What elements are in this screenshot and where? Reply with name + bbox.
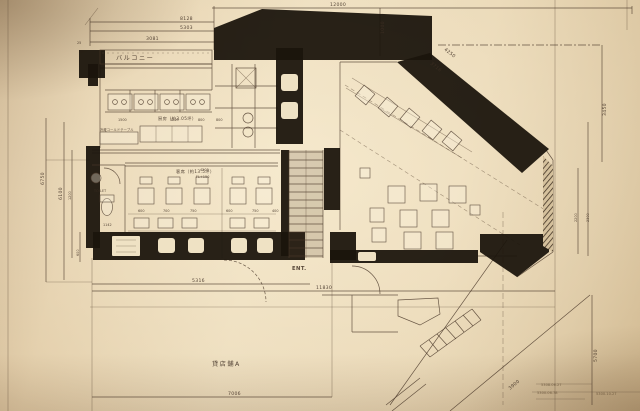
dim-top-b: 5303 <box>180 25 193 31</box>
stamp-2: 5300.06.78 <box>537 391 558 395</box>
dim-seat-b: 700 <box>163 209 169 213</box>
left-dining-tables <box>134 177 272 228</box>
dim-seat-d: 600 <box>226 209 232 213</box>
floor-plan-photo: バルコニー 厨房（約3.05坪） 客席（約13.5坪） FL+150 ENT. … <box>0 0 640 411</box>
dim-seat-c: 750 <box>190 209 196 213</box>
tenant-area-label: 貸店舗A <box>212 360 241 368</box>
dim-diag-c: 3900 <box>507 379 521 392</box>
dim-kitchen-c: 800 <box>198 118 204 122</box>
dim-left-d: 600 <box>76 250 80 256</box>
dim-right-c: 2300 <box>586 213 590 222</box>
dim-left-c: 1200 <box>68 191 72 200</box>
wall-corner-point <box>480 234 549 277</box>
dim-top-a: 8128 <box>180 16 193 22</box>
dim-diag-a: 4250 <box>443 47 457 60</box>
dim-top-d: 25 <box>77 41 81 45</box>
balcony-label: バルコニー <box>116 55 154 62</box>
dim-bottom-c: 7006 <box>228 391 241 397</box>
dim-shaft: 1000 <box>380 21 386 34</box>
kitchen-island <box>140 126 202 142</box>
wall-stair-shaft <box>276 48 303 144</box>
stamp-1: 5308.06.27 <box>541 383 562 387</box>
dim-wc: 1142 <box>103 223 112 227</box>
toilet-label: TOILET <box>93 189 106 193</box>
revision-stamps: 5308.06.27 5300.06.78 5300.10.27 <box>537 383 617 396</box>
wall-top-band <box>214 9 432 60</box>
dim-bottom-a: 5316 <box>192 278 205 284</box>
cold-table-label: 冷蔵コールドテーブル <box>100 127 134 132</box>
dim-seating-w: 4203 <box>200 168 209 172</box>
seating-fl-label: FL+150 <box>196 175 210 179</box>
cold-table <box>100 132 138 144</box>
dim-seat-a: 600 <box>138 209 144 213</box>
dim-right-b: 2200 <box>574 213 578 222</box>
dim-left-a: 6750 <box>40 172 46 185</box>
dim-kitchen-d: 800 <box>216 118 222 122</box>
dim-top-overall: 12000 <box>330 2 346 8</box>
seating-label: 客席（約13.5坪） <box>176 168 214 175</box>
sink <box>91 173 101 183</box>
dim-top-c: 3081 <box>146 36 159 42</box>
dim-left-b: 6100 <box>58 187 64 200</box>
wall-hatched-right <box>543 156 553 252</box>
main-staircase <box>289 150 323 258</box>
refrigerator <box>243 113 253 123</box>
floor-plan-drawing: バルコニー 厨房（約3.05坪） 客席（約13.5坪） FL+150 ENT. … <box>0 0 640 411</box>
dim-seat-e: 750 <box>252 209 258 213</box>
dim-bottom-b: 11830 <box>316 285 332 291</box>
entrance-label: ENT. <box>292 266 307 272</box>
dim-right-d: 5700 <box>593 349 599 362</box>
wall-diagonal-band <box>397 53 549 173</box>
dim-kitchen-b: 1209 <box>170 118 179 122</box>
stamp-3: 5300.10.27 <box>596 392 617 396</box>
dim-seat-f: 400 <box>272 209 278 213</box>
dim-kitchen-a: 1500 <box>118 118 127 122</box>
dim-right-a: 3450 <box>602 103 608 116</box>
